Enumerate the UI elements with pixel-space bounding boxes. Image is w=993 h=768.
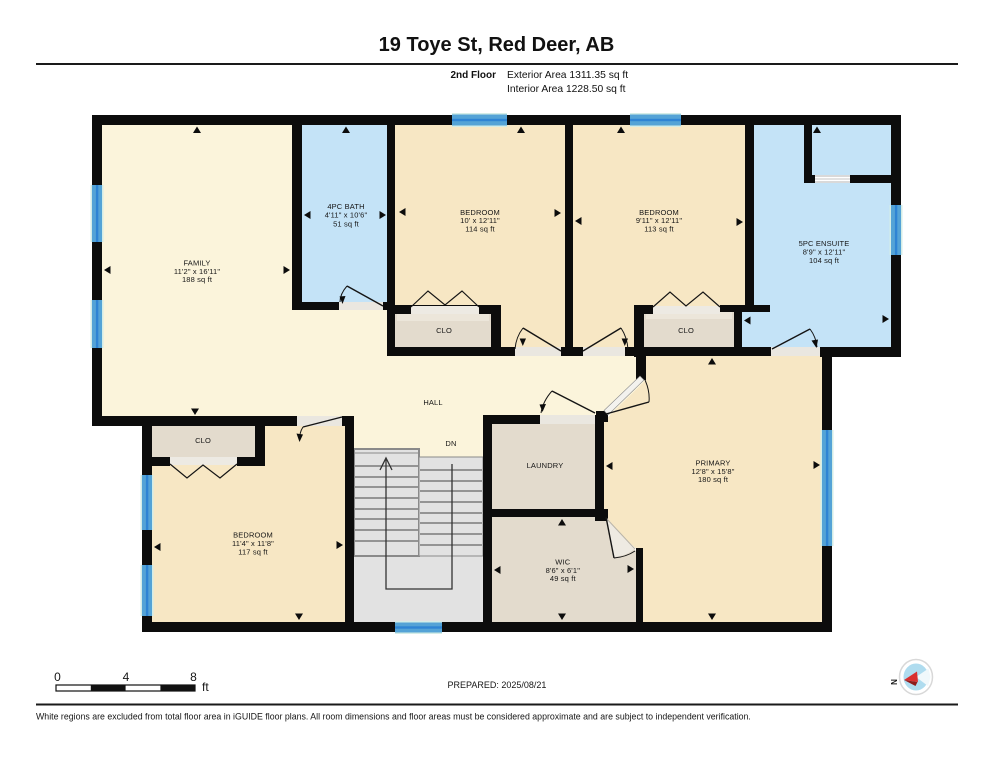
svg-text:CLO: CLO <box>195 436 211 445</box>
svg-text:LAUNDRY: LAUNDRY <box>527 461 564 470</box>
svg-text:8: 8 <box>190 670 197 684</box>
svg-text:0: 0 <box>54 670 61 684</box>
svg-text:N: N <box>890 679 899 685</box>
svg-text:49 sq ft: 49 sq ft <box>550 574 577 583</box>
svg-text:PREPARED: 2025/08/21: PREPARED: 2025/08/21 <box>448 680 547 690</box>
svg-text:180 sq ft: 180 sq ft <box>698 475 729 484</box>
svg-text:4PC BATH: 4PC BATH <box>327 202 364 211</box>
svg-text:DN: DN <box>445 439 456 448</box>
svg-text:4'11" x 10'6": 4'11" x 10'6" <box>325 211 368 220</box>
svg-text:114 sq ft: 114 sq ft <box>465 225 495 234</box>
svg-text:HALL: HALL <box>423 398 442 407</box>
svg-text:White regions are excluded fro: White regions are excluded from total fl… <box>36 712 751 722</box>
svg-text:113 sq ft: 113 sq ft <box>644 225 674 234</box>
svg-text:51 sq ft: 51 sq ft <box>333 220 360 229</box>
svg-text:ft: ft <box>202 680 209 694</box>
svg-text:CLO: CLO <box>436 326 452 335</box>
svg-text:188 sq ft: 188 sq ft <box>182 275 213 284</box>
svg-text:117 sq ft: 117 sq ft <box>238 547 268 556</box>
svg-text:4: 4 <box>123 670 130 684</box>
svg-text:104 sq ft: 104 sq ft <box>809 256 840 265</box>
svg-text:CLO: CLO <box>678 326 694 335</box>
